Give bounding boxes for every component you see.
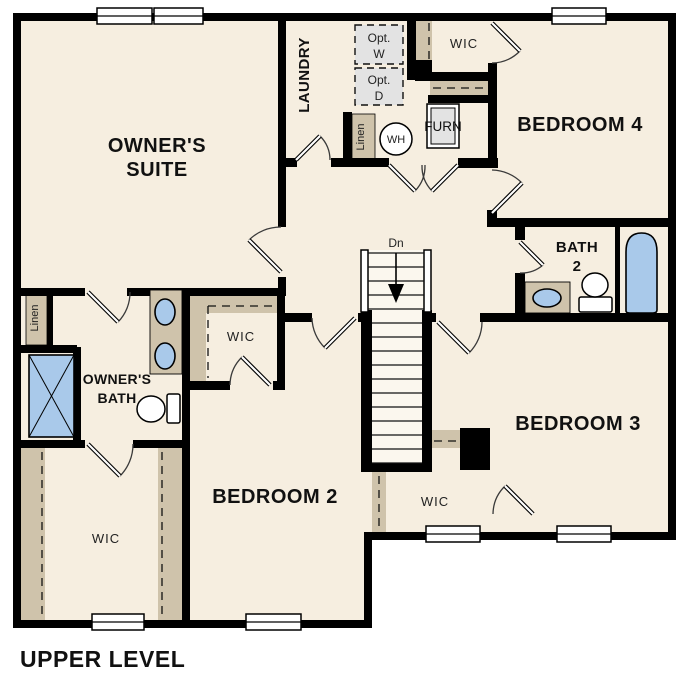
water-heater-label: WH xyxy=(387,134,405,146)
room-label-bedroom3: BEDROOM 3 xyxy=(515,413,641,435)
sink-fixture xyxy=(533,289,561,307)
optional-dryer-label2: D xyxy=(375,89,384,103)
sink-fixture xyxy=(155,343,175,369)
room-label-owners-suite-2: SUITE xyxy=(126,159,187,181)
room-label-wic-middle: WIC xyxy=(227,329,255,344)
label-linen-laundry: Linen xyxy=(355,124,367,151)
window xyxy=(154,8,203,24)
owners-toilet-fixture xyxy=(137,394,180,423)
plan-title: UPPER LEVEL xyxy=(20,646,185,672)
window xyxy=(92,614,144,630)
room-label-bedroom2: BEDROOM 2 xyxy=(212,486,338,508)
shower-fixture xyxy=(29,355,74,437)
room-label-owners-bath-2: BATH xyxy=(97,390,136,406)
window xyxy=(552,8,606,24)
optional-washer-box: Opt. W xyxy=(355,25,403,64)
window xyxy=(97,8,152,24)
furnace-label: FURN xyxy=(424,119,462,134)
room-label-owners-bath: OWNER'S xyxy=(83,371,151,387)
sink-fixture xyxy=(155,299,175,325)
stairs-down-label: Dn xyxy=(388,236,403,250)
optional-dryer-box: Opt. D xyxy=(355,68,403,105)
furnace-fixture: FURN xyxy=(424,104,462,148)
label-linen-owners: Linen xyxy=(29,305,41,332)
window xyxy=(557,526,611,542)
room-label-bath2-2: 2 xyxy=(573,258,582,275)
room-label-wic-bedroom4: WIC xyxy=(450,36,478,51)
bathtub-fixture xyxy=(626,233,657,313)
room-label-owners-suite: OWNER'S xyxy=(108,135,206,157)
optional-washer-label2: W xyxy=(373,47,385,61)
floor-plan-page: Dn xyxy=(0,0,687,687)
room-label-laundry: LAUNDRY xyxy=(296,37,313,113)
window xyxy=(426,526,480,542)
optional-washer-label: Opt. xyxy=(368,31,391,45)
window xyxy=(246,614,301,630)
water-heater-fixture: WH xyxy=(380,123,412,155)
bath2-vanity xyxy=(525,282,570,313)
owners-vanity xyxy=(150,290,182,374)
optional-dryer-label: Opt. xyxy=(368,73,391,87)
room-label-bedroom4: BEDROOM 4 xyxy=(517,114,643,136)
room-label-wic-bedroom3: WIC xyxy=(421,494,449,509)
floor-plan-drawing: Dn xyxy=(0,0,687,687)
room-label-wic-owners: WIC xyxy=(92,531,120,546)
room-label-bath2: BATH xyxy=(556,239,598,256)
